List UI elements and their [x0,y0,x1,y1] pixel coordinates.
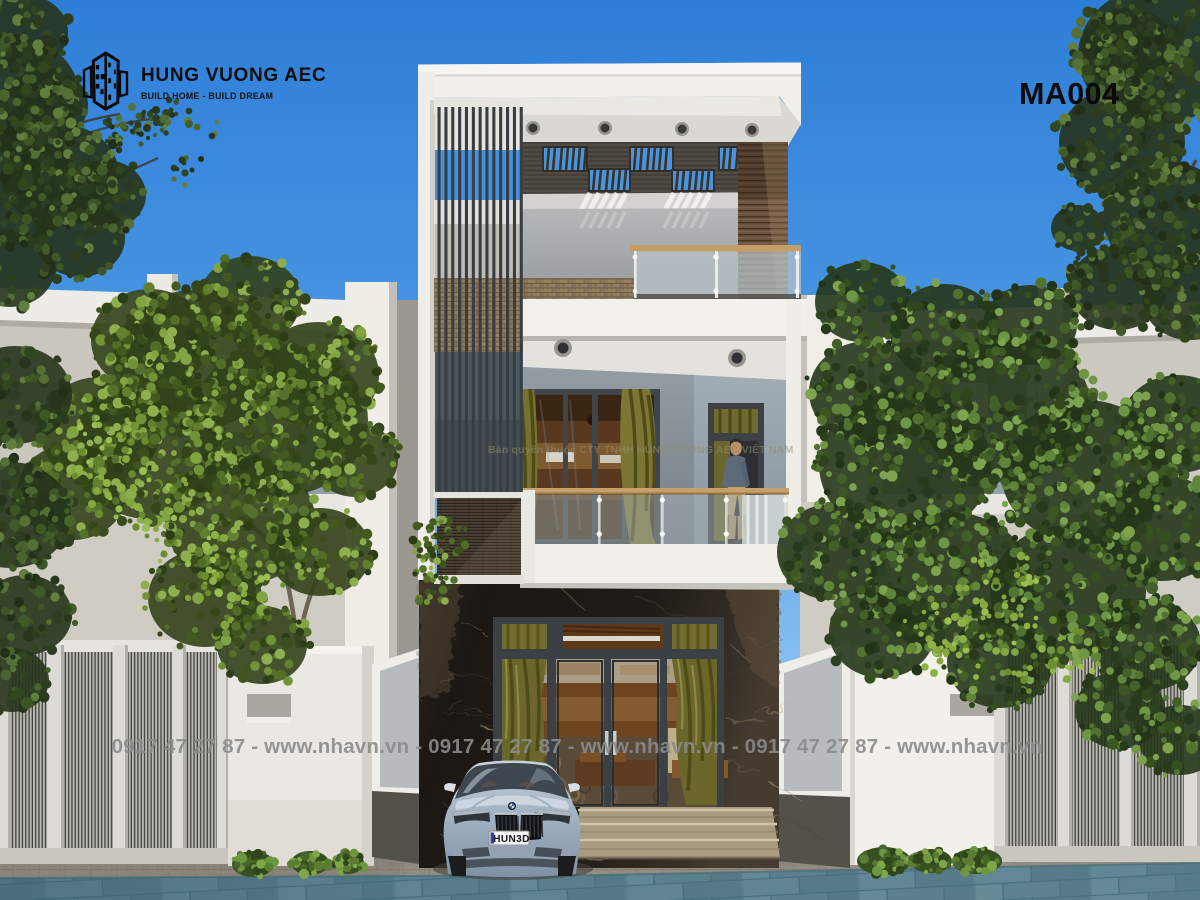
svg-text:HUN3D: HUN3D [493,834,529,845]
